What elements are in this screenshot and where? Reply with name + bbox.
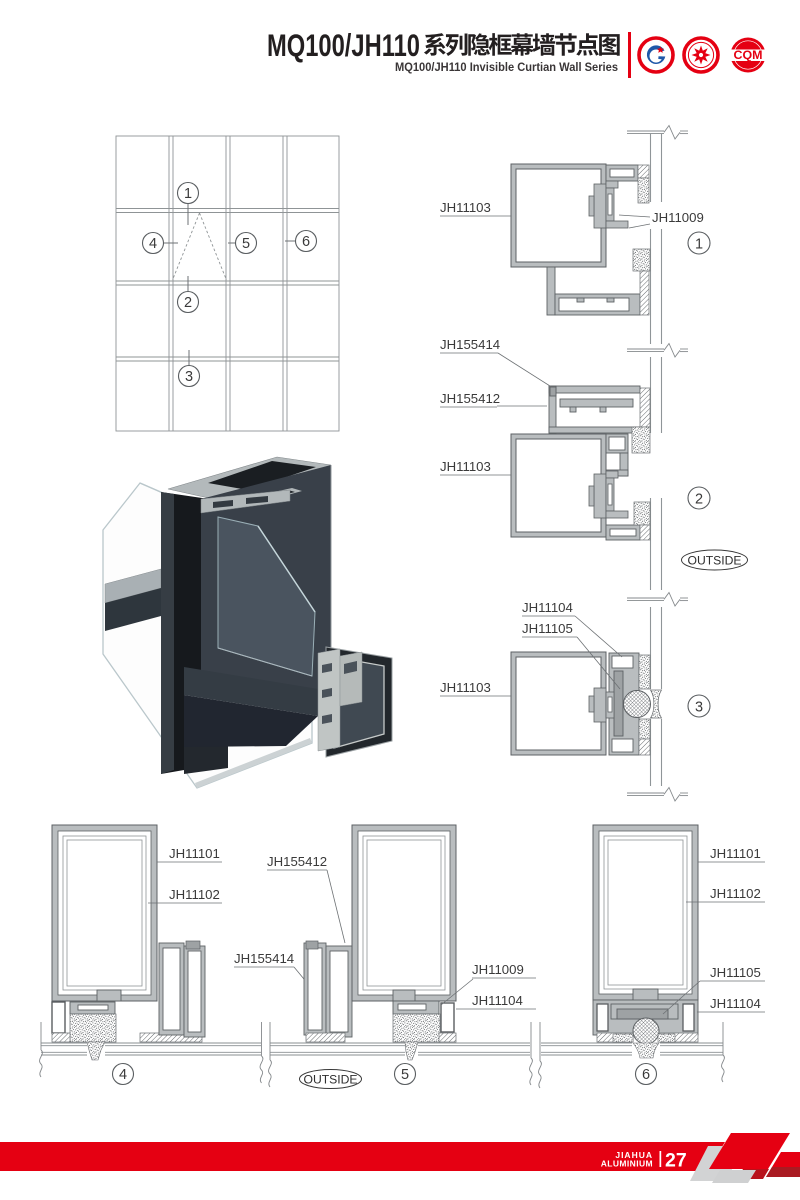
svg-text:JH11102: JH11102 xyxy=(710,886,761,901)
svg-text:3: 3 xyxy=(185,369,193,385)
svg-text:CQM: CQM xyxy=(734,50,763,62)
svg-text:OUTSIDE: OUTSIDE xyxy=(304,1072,358,1086)
svg-text:JH11104: JH11104 xyxy=(522,600,573,615)
svg-text:OUTSIDE: OUTSIDE xyxy=(688,553,742,567)
svg-text:1: 1 xyxy=(184,186,192,202)
svg-text:JH11009: JH11009 xyxy=(652,210,704,225)
svg-text:MQ100/JH110: MQ100/JH110 xyxy=(267,27,420,63)
svg-text:JH11101: JH11101 xyxy=(169,846,220,861)
svg-text:JH155412: JH155412 xyxy=(267,854,327,869)
svg-text:5: 5 xyxy=(401,1067,409,1083)
svg-text:JH11105: JH11105 xyxy=(710,965,761,980)
svg-text:2: 2 xyxy=(184,295,192,311)
svg-text:1: 1 xyxy=(695,236,703,252)
svg-text:JH11105: JH11105 xyxy=(522,621,573,636)
svg-text:JH11101: JH11101 xyxy=(710,846,761,861)
svg-text:JH11104: JH11104 xyxy=(710,996,761,1011)
svg-text:JH11103: JH11103 xyxy=(440,200,491,215)
svg-text:6: 6 xyxy=(302,234,310,250)
svg-text:3: 3 xyxy=(695,699,703,715)
svg-text:JH11103: JH11103 xyxy=(440,680,491,695)
svg-text:JH11103: JH11103 xyxy=(440,459,491,474)
svg-text:JH11104: JH11104 xyxy=(472,993,523,1008)
svg-text:2: 2 xyxy=(695,491,703,507)
svg-text:MQ100/JH110 Invisible Curtia: MQ100/JH110 Invisible Curtian Wall Serie… xyxy=(395,61,618,74)
svg-text:4: 4 xyxy=(149,236,157,252)
svg-text:JH155414: JH155414 xyxy=(234,951,294,966)
svg-text:5: 5 xyxy=(242,236,250,252)
svg-text:JH11102: JH11102 xyxy=(169,887,220,902)
svg-text:27: 27 xyxy=(665,1150,687,1172)
svg-text:ALUMINIUM: ALUMINIUM xyxy=(601,1159,653,1169)
svg-text:4: 4 xyxy=(119,1067,127,1083)
svg-text:JH11009: JH11009 xyxy=(472,962,524,977)
svg-text:JH155412: JH155412 xyxy=(440,391,500,406)
svg-text:6: 6 xyxy=(642,1067,650,1083)
svg-text:JH155414: JH155414 xyxy=(440,337,500,352)
